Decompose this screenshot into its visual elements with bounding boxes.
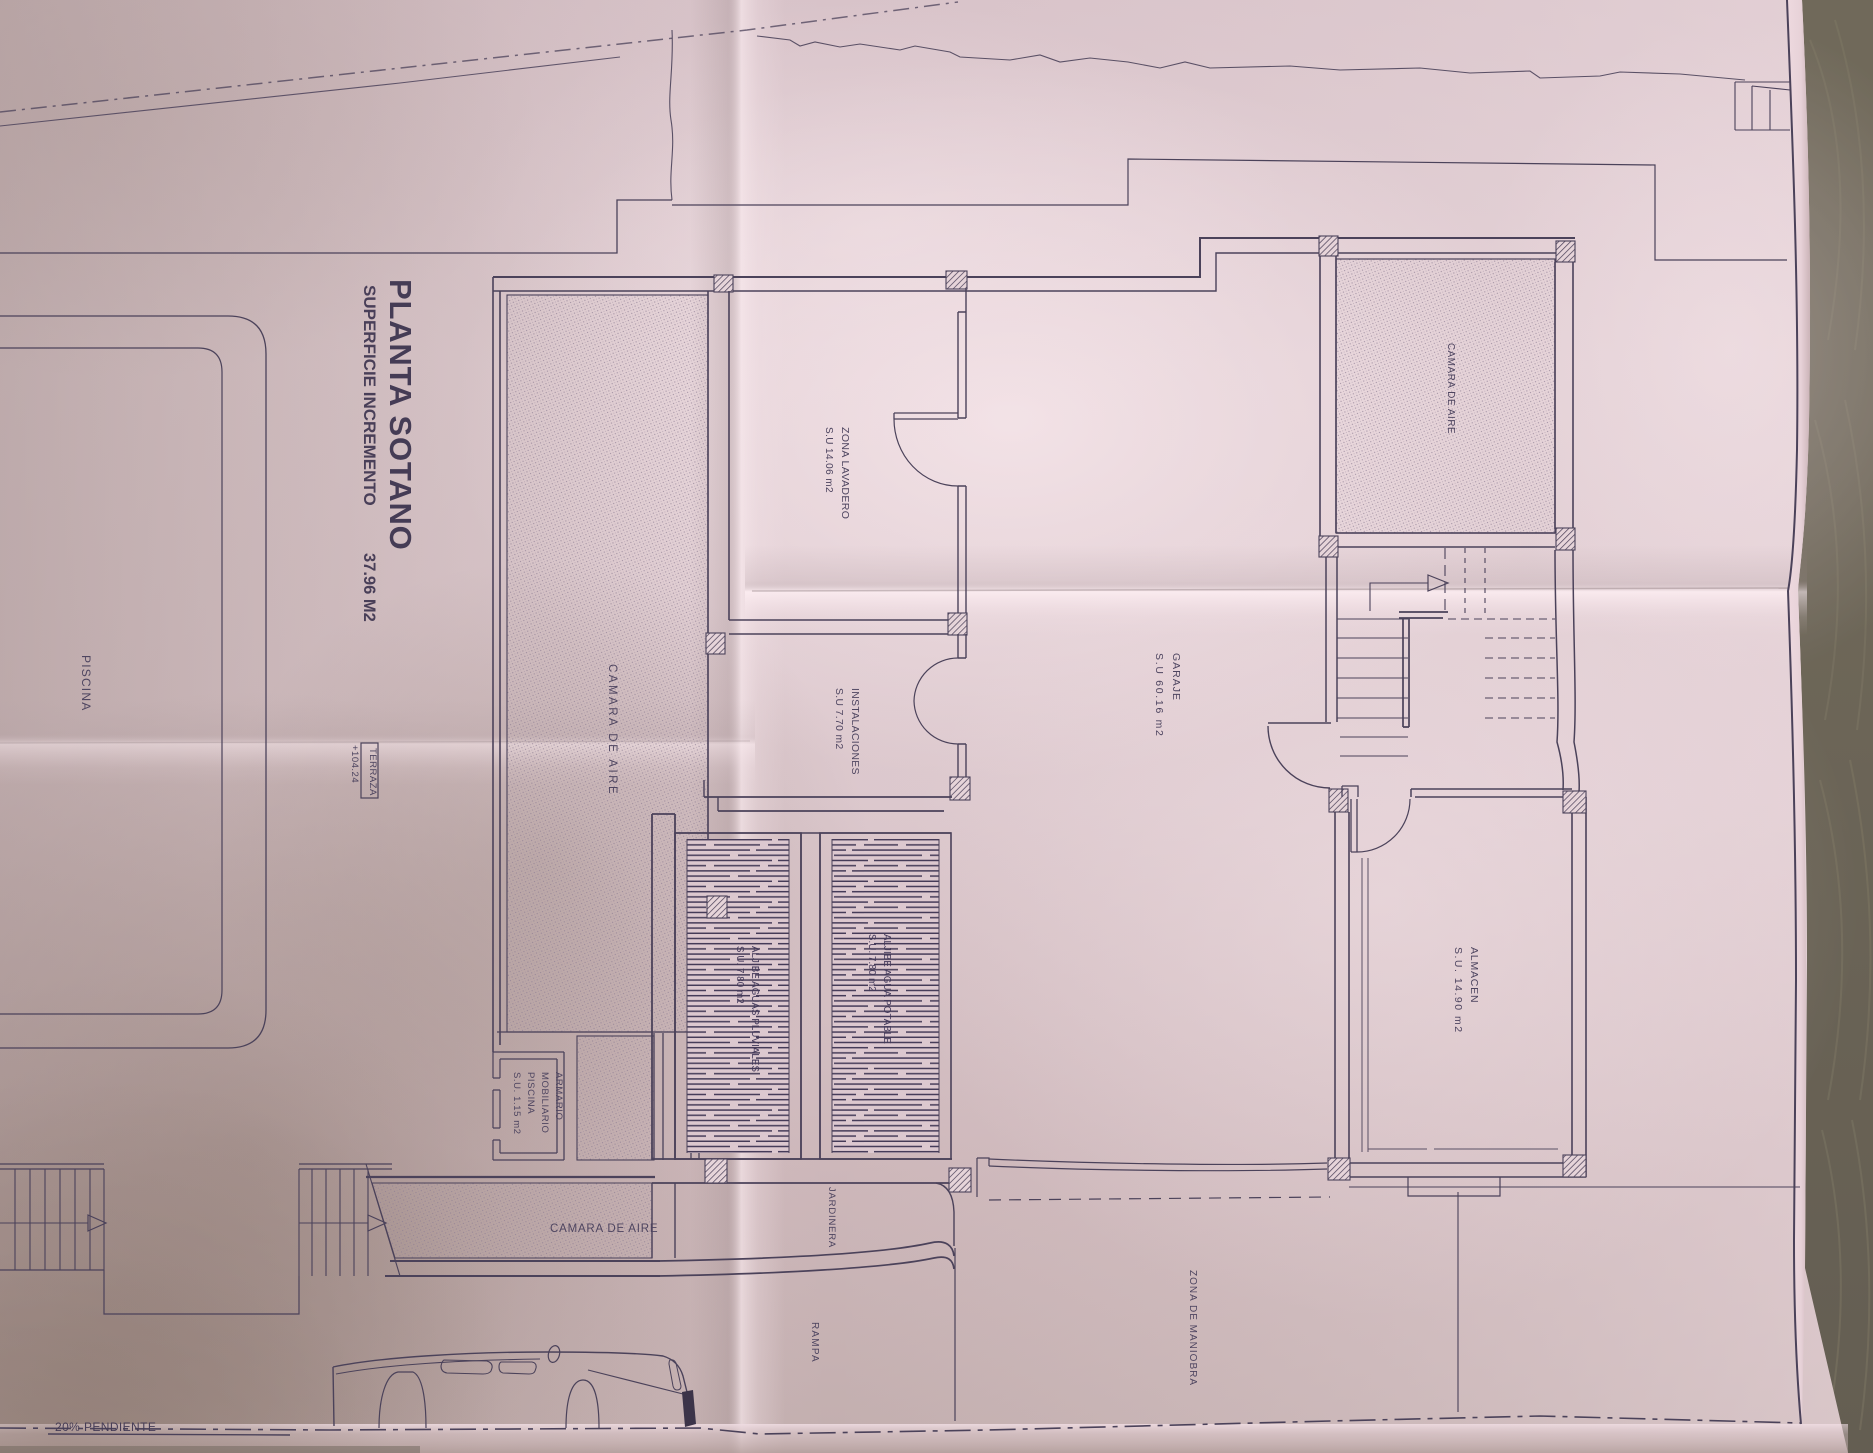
svg-text:+104.24: +104.24 bbox=[349, 745, 360, 783]
svg-text:ALJIBE AGUAS PLUVIALES: ALJIBE AGUAS PLUVIALES bbox=[749, 946, 760, 1072]
svg-text:MOBILIARIO: MOBILIARIO bbox=[539, 1072, 550, 1133]
svg-text:CAMARA DE AIRE: CAMARA DE AIRE bbox=[1445, 343, 1456, 434]
svg-text:PISCINA: PISCINA bbox=[525, 1072, 536, 1114]
svg-text:PISCINA: PISCINA bbox=[79, 655, 93, 711]
svg-text:S.U 60.16 m2: S.U 60.16 m2 bbox=[1153, 653, 1165, 738]
svg-text:CAMARA DE AIRE: CAMARA DE AIRE bbox=[606, 664, 618, 796]
svg-text:ZONA LAVADERO: ZONA LAVADERO bbox=[839, 427, 851, 519]
svg-text:37.96 M2: 37.96 M2 bbox=[360, 553, 378, 622]
svg-text:ARMARIO: ARMARIO bbox=[553, 1072, 564, 1121]
svg-text:CAMARA DE AIRE: CAMARA DE AIRE bbox=[550, 1223, 658, 1235]
svg-text:PLANTA SOTANO: PLANTA SOTANO bbox=[383, 279, 418, 551]
svg-text:ALJIBE AGUA POTABLE: ALJIBE AGUA POTABLE bbox=[881, 934, 892, 1044]
svg-text:ZONA DE MANIOBRA: ZONA DE MANIOBRA bbox=[1187, 1270, 1198, 1386]
svg-text:INSTALACIONES: INSTALACIONES bbox=[849, 688, 860, 775]
svg-text:TERRAZA: TERRAZA bbox=[367, 748, 378, 796]
svg-text:GARAJE: GARAJE bbox=[1170, 653, 1182, 701]
svg-text:20% PENDIENTE: 20% PENDIENTE bbox=[55, 1420, 156, 1434]
svg-text:S.U. 14.90 m2: S.U. 14.90 m2 bbox=[1452, 947, 1464, 1034]
svg-text:S.U. 1.15 m2: S.U. 1.15 m2 bbox=[511, 1072, 522, 1135]
svg-text:S.U. 7.80 m2: S.U. 7.80 m2 bbox=[866, 934, 877, 992]
svg-text:ALMACEN: ALMACEN bbox=[1468, 947, 1480, 1003]
svg-text:S.U 14.06 m2: S.U 14.06 m2 bbox=[823, 427, 834, 493]
svg-text:S.U 7.70 m2: S.U 7.70 m2 bbox=[833, 688, 844, 750]
svg-text:RAMPA: RAMPA bbox=[809, 1322, 820, 1363]
svg-text:SUPERFICIE INCREMENTO: SUPERFICIE INCREMENTO bbox=[360, 285, 379, 506]
svg-text:S.U. 7.80 m2: S.U. 7.80 m2 bbox=[734, 946, 745, 1004]
svg-text:JARDINERA: JARDINERA bbox=[826, 1187, 837, 1248]
